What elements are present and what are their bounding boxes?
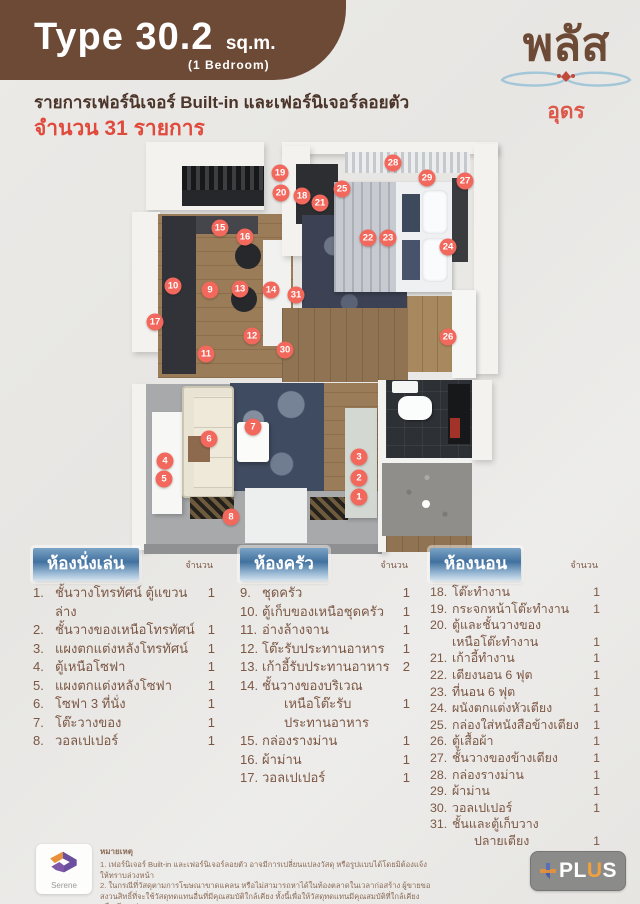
furniture-item: 2.ชั้นวางของเหนือโทรทัศน์1 [33, 621, 215, 640]
plan-marker-21: 21 [312, 195, 329, 212]
furniture-item: 3.แผงตกแต่งหลังโทรทัศน์1 [33, 640, 215, 659]
qty-header: จำนวน [185, 558, 213, 572]
plan-marker-31: 31 [288, 287, 305, 304]
plan-marker-6: 6 [201, 431, 218, 448]
type-unit-label: sq.m. [226, 33, 276, 54]
furniture-item: 27.ชั้นวางของข้างเตียง1 [430, 750, 600, 767]
plan-marker-3: 3 [351, 449, 368, 466]
plan-marker-28: 28 [385, 155, 402, 172]
furniture-item: 25.กล่องใส่หนังสือข้างเตียง1 [430, 717, 600, 734]
footnotes: หมายเหตุ 1. เฟอร์นิเจอร์ Built-in และเฟอ… [100, 845, 435, 904]
plan-marker-5: 5 [156, 471, 173, 488]
plus-label: PLUS [559, 859, 617, 883]
furniture-item: 5.แผงตกแต่งหลังโซฟา1 [33, 677, 215, 696]
plan-marker-25: 25 [334, 181, 351, 198]
plus-icon [539, 862, 557, 880]
plan-marker-30: 30 [277, 342, 294, 359]
furniture-item: 23.ที่นอน 6 ฟุต1 [430, 684, 600, 701]
type-title: Type 30.2 sq.m. [34, 16, 275, 59]
plan-marker-27: 27 [457, 173, 474, 190]
plan-marker-11: 11 [198, 346, 215, 363]
type-title-box: Type 30.2 sq.m. (1 Bedroom) [0, 0, 346, 80]
furniture-item: 12.โต๊ะรับประทานอาหาร1 [240, 640, 410, 659]
plan-marker-12: 12 [244, 328, 261, 345]
type-size-label: Type 30.2 [34, 16, 213, 58]
plan-marker-22: 22 [360, 230, 377, 247]
plan-marker-29: 29 [419, 170, 436, 187]
plan-marker-7: 7 [245, 419, 262, 436]
furniture-item: 26.ตู้เสื้อผ้า1 [430, 733, 600, 750]
plus-logo: PLUS [530, 851, 626, 891]
qty-header: จำนวน [570, 558, 598, 572]
qty-header: จำนวน [380, 558, 408, 572]
plan-marker-18: 18 [294, 188, 311, 205]
furniture-item: 6.โซฟา 3 ที่นั่ง1 [33, 695, 215, 714]
plan-marker-15: 15 [212, 220, 229, 237]
brand-name: พลัส [496, 20, 636, 68]
plan-marker-24: 24 [440, 239, 457, 256]
plan-marker-10: 10 [165, 278, 182, 295]
furniture-column: ห้องนอน จำนวน 18.โต๊ะทำงาน119.กระจกหน้าโ… [430, 548, 600, 850]
furniture-item: 1.ชั้นวางโทรทัศน์ ตู้แขวนล่าง1 [33, 584, 215, 621]
serene-icon [49, 848, 79, 876]
furniture-item: 29.ผ้าม่าน1 [430, 783, 600, 800]
plan-marker-2: 2 [351, 470, 368, 487]
furniture-item: 15.กล่องรางม่าน1 [240, 732, 410, 751]
furniture-column: ห้องครัว จำนวน 9.ชุดครัว110.ตู้เก็บของเห… [240, 548, 410, 788]
flyer-page: Type 30.2 sq.m. (1 Bedroom) พลัส อุดร รา… [0, 0, 640, 904]
bedroom-count-label: (1 Bedroom) [188, 58, 270, 72]
furniture-item: 7.โต๊ะวางของ1 [33, 714, 215, 733]
plan-marker-4: 4 [157, 453, 174, 470]
brand-location: อุดร [496, 95, 636, 128]
furniture-item: เหนือโต๊ะทำงาน1 [430, 634, 600, 651]
furniture-item: 13.เก้าอี้รับประทานอาหาร2 [240, 658, 410, 677]
furniture-item: 21.เก้าอี้ทำงาน1 [430, 650, 600, 667]
furniture-item: 22.เตียงนอน 6 ฟุต1 [430, 667, 600, 684]
plan-marker-9: 9 [202, 282, 219, 299]
column-items: 9.ชุดครัว110.ตู้เก็บของเหนือชุดครัว111.อ… [240, 584, 410, 788]
furniture-item: 24.ผนังตกแต่งหัวเตียง1 [430, 700, 600, 717]
furniture-item: 11.อ่างล้างจาน1 [240, 621, 410, 640]
furniture-item: เหนือโต๊ะรับประทานอาหาร1 [240, 695, 410, 732]
column-title-bedroom: ห้องนอน [430, 548, 521, 581]
brand-wave-icon [496, 68, 636, 90]
furniture-item: 30.วอลเปเปอร์1 [430, 800, 600, 817]
furniture-item: 31.ชั้นและตู้เก็บวาง [430, 816, 600, 833]
plan-marker-1: 1 [351, 489, 368, 506]
note-line-2: 2. ในกรณีที่วัสดุตามการโฆษณาขาดแคลน หรือ… [100, 881, 435, 904]
furniture-item: 18.โต๊ะทำงาน1 [430, 584, 600, 601]
column-items: 18.โต๊ะทำงาน119.กระจกหน้าโต๊ะทำงาน120.ตู… [430, 584, 600, 850]
furniture-item: 14.ชั้นวางของบริเวณ [240, 677, 410, 696]
plan-marker-14: 14 [263, 282, 280, 299]
furniture-item: 10.ตู้เก็บของเหนือชุดครัว1 [240, 603, 410, 622]
brand-logo: พลัส อุดร [496, 20, 636, 128]
plan-marker-16: 16 [237, 229, 254, 246]
floor-plan-markers: 1234567891011121314151617181920212223242… [130, 140, 508, 560]
furniture-item: 8.วอลเปเปอร์1 [33, 732, 215, 751]
column-title-kitchen: ห้องครัว [240, 548, 328, 581]
furniture-item: 20.ตู้และชั้นวางของ [430, 617, 600, 634]
furniture-item: 9.ชุดครัว1 [240, 584, 410, 603]
furniture-item: 17.วอลเปเปอร์1 [240, 769, 410, 788]
column-title-living-room: ห้องนั่งเล่น [33, 548, 139, 581]
plan-marker-17: 17 [147, 314, 164, 331]
furniture-item: 19.กระจกหน้าโต๊ะทำงาน1 [430, 601, 600, 618]
serene-label: Serene [36, 881, 92, 890]
floor-plan: 1234567891011121314151617181920212223242… [130, 140, 508, 560]
plan-marker-23: 23 [380, 230, 397, 247]
note-line-1: 1. เฟอร์นิเจอร์ Built-in และเฟอร์นิเจอร์… [100, 860, 435, 881]
plan-marker-13: 13 [232, 281, 249, 298]
furniture-item: 16.ผ้าม่าน1 [240, 751, 410, 770]
note-title: หมายเหตุ [100, 845, 435, 858]
furniture-item: 4.ตู้เหนือโซฟา1 [33, 658, 215, 677]
furniture-item: 28.กล่องรางม่าน1 [430, 767, 600, 784]
furniture-item: ปลายเตียง1 [430, 833, 600, 850]
furniture-column: ห้องนั่งเล่น จำนวน 1.ชั้นวางโทรทัศน์ ตู้… [33, 548, 215, 751]
plan-marker-8: 8 [223, 509, 240, 526]
serene-logo: Serene [36, 844, 92, 894]
column-items: 1.ชั้นวางโทรทัศน์ ตู้แขวนล่าง12.ชั้นวางข… [33, 584, 215, 751]
plan-marker-20: 20 [273, 185, 290, 202]
plan-marker-19: 19 [272, 165, 289, 182]
plan-marker-26: 26 [440, 329, 457, 346]
